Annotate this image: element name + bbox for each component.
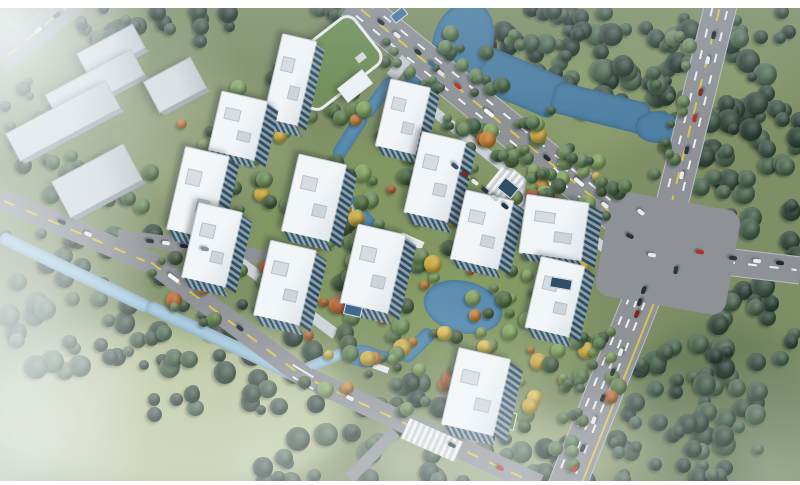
frame-top xyxy=(0,0,800,8)
frame-bottom xyxy=(0,481,800,485)
aerial-render xyxy=(0,0,800,485)
aerial-render-stage xyxy=(0,0,800,485)
